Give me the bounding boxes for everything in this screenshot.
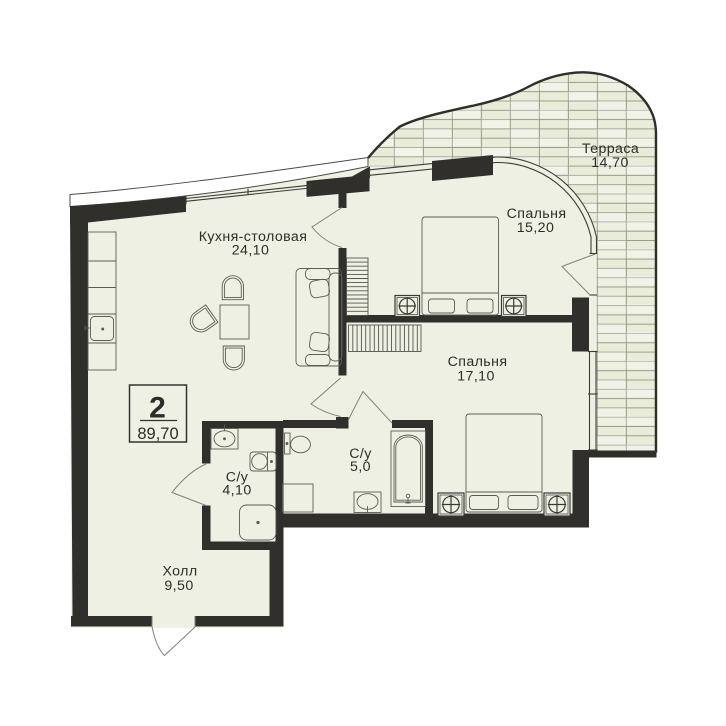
svg-text:15,20: 15,20 xyxy=(517,220,555,236)
svg-text:14,70: 14,70 xyxy=(591,155,629,171)
svg-text:89,70: 89,70 xyxy=(137,425,178,443)
svg-text:4,10: 4,10 xyxy=(222,483,251,499)
svg-text:5,0: 5,0 xyxy=(350,459,371,475)
svg-text:9,50: 9,50 xyxy=(164,578,193,594)
svg-text:24,10: 24,10 xyxy=(232,243,270,259)
svg-text:2: 2 xyxy=(149,392,166,425)
svg-text:17,10: 17,10 xyxy=(457,369,495,385)
